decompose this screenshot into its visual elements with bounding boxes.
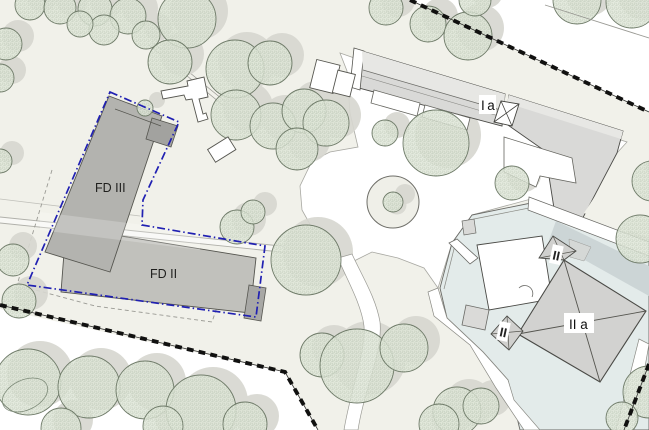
svg-text:II a: II a [569, 317, 588, 332]
svg-text:I a: I a [481, 98, 495, 113]
svg-text:FD II: FD II [150, 267, 177, 281]
svg-text:FD III: FD III [95, 181, 126, 195]
